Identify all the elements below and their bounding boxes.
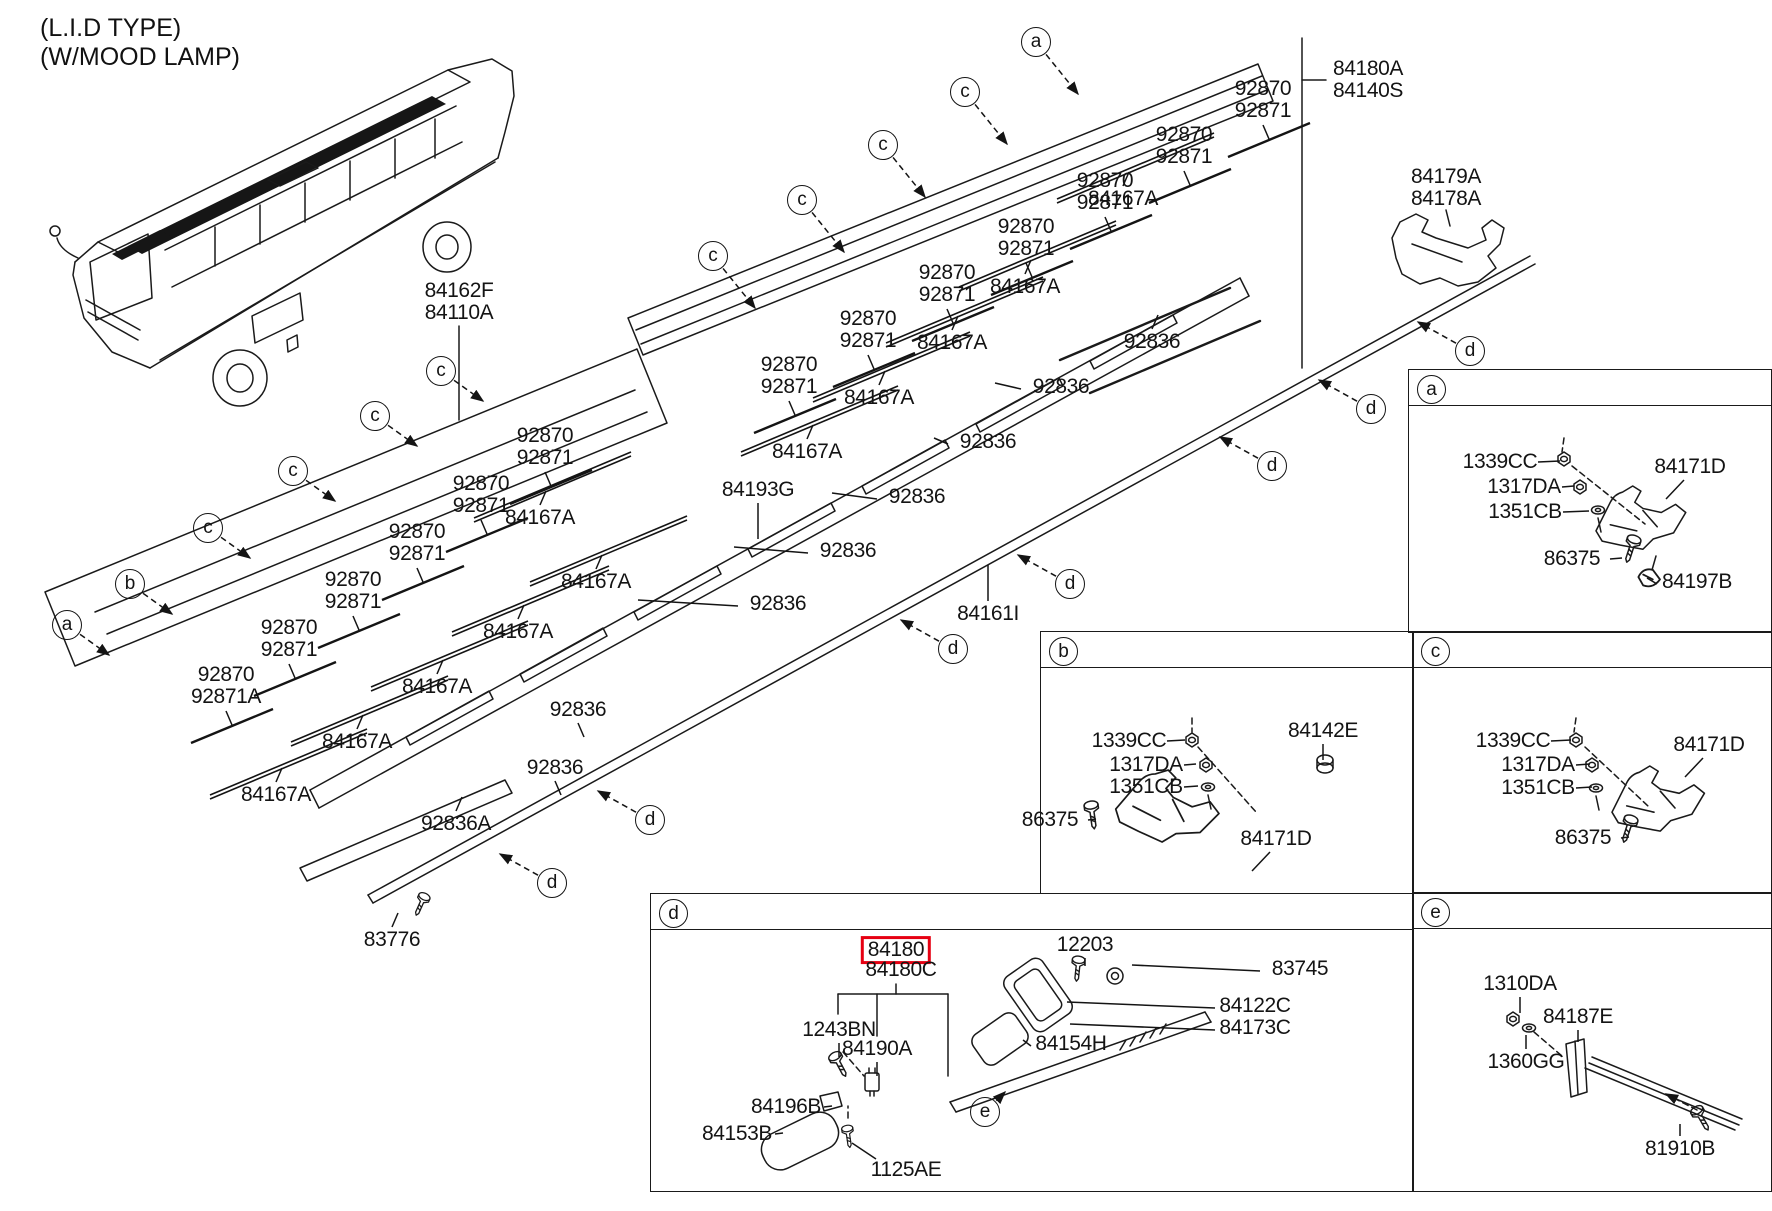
part-label-84167A[interactable]: 84167A	[990, 276, 1060, 298]
part-label-84162F-84110A[interactable]: 84162F 84110A	[425, 280, 494, 324]
part-label-92836[interactable]: 92836	[889, 486, 945, 508]
part-label-84179A-84178A[interactable]: 84179A 84178A	[1411, 166, 1481, 210]
part-label-84153B[interactable]: 84153B	[702, 1123, 772, 1145]
part-label-92870-92871[interactable]: 92870 92871	[998, 216, 1054, 260]
part-label-84154H[interactable]: 84154H	[1035, 1033, 1106, 1055]
parts-diagram: (L.I.D TYPE) (W/MOOD LAMP)	[0, 0, 1772, 1211]
part-label-92836[interactable]: 92836	[750, 593, 806, 615]
callout-a: a	[52, 610, 82, 640]
part-label-84167A[interactable]: 84167A	[1088, 188, 1158, 210]
part-label-84167A[interactable]: 84167A	[772, 441, 842, 463]
callout-a: a	[1021, 27, 1051, 57]
part-label-92836A[interactable]: 92836A	[421, 813, 491, 835]
part-label-86375[interactable]: 86375	[1555, 827, 1611, 849]
part-label-84173C[interactable]: 84173C	[1219, 1017, 1290, 1039]
callout-d: d	[1455, 336, 1485, 366]
diagram-leaders	[0, 0, 1772, 1211]
part-label-92836[interactable]: 92836	[1124, 331, 1180, 353]
part-label-1125AE[interactable]: 1125AE	[871, 1159, 942, 1181]
part-label-92836[interactable]: 92836	[820, 540, 876, 562]
part-label-84161I[interactable]: 84161I	[957, 603, 1019, 625]
part-label-84171D[interactable]: 84171D	[1654, 456, 1725, 478]
part-label-1351CB[interactable]: 1351CB	[1501, 777, 1575, 799]
part-label-92870-92871[interactable]: 92870 92871	[1235, 78, 1291, 122]
part-label-84167A[interactable]: 84167A	[844, 387, 914, 409]
part-label-84167A[interactable]: 84167A	[402, 676, 472, 698]
callout-b: b	[115, 569, 145, 599]
part-label-92836[interactable]: 92836	[1033, 376, 1089, 398]
part-label-92870-92871[interactable]: 92870 92871	[517, 425, 573, 469]
part-label-1351CB[interactable]: 1351CB	[1488, 501, 1562, 523]
part-label-92836[interactable]: 92836	[550, 699, 606, 721]
part-label-83776[interactable]: 83776	[364, 929, 420, 951]
part-label-84142E[interactable]: 84142E	[1288, 720, 1358, 742]
part-label-81910B[interactable]: 81910B	[1645, 1138, 1715, 1160]
part-label-84196B[interactable]: 84196B	[751, 1096, 821, 1118]
callout-c: c	[278, 456, 308, 486]
part-label-92870-92871[interactable]: 92870 92871	[919, 262, 975, 306]
part-label-1317DA[interactable]: 1317DA	[1501, 754, 1575, 776]
callout-d: d	[537, 868, 567, 898]
part-label-92870-92871[interactable]: 92870 92871	[840, 308, 896, 352]
part-label-92836[interactable]: 92836	[960, 431, 1016, 453]
part-label-12203[interactable]: 12203	[1057, 934, 1113, 956]
part-label-84193G[interactable]: 84193G	[722, 479, 794, 501]
part-label-84167A[interactable]: 84167A	[322, 731, 392, 753]
part-label-84167A[interactable]: 84167A	[241, 784, 311, 806]
part-label-92870-92871[interactable]: 92870 92871	[1156, 124, 1212, 168]
part-label-84167A[interactable]: 84167A	[505, 507, 575, 529]
callout-d: d	[1257, 451, 1287, 481]
diagram-title: (L.I.D TYPE) (W/MOOD LAMP)	[40, 14, 240, 72]
part-label-1351CB[interactable]: 1351CB	[1109, 776, 1183, 798]
part-label-84180A-84140S[interactable]: 84180A 84140S	[1333, 58, 1403, 102]
part-label-84122C[interactable]: 84122C	[1219, 995, 1290, 1017]
part-label-84190A[interactable]: 84190A	[842, 1038, 912, 1060]
part-label-92870-92871[interactable]: 92870 92871	[761, 354, 817, 398]
callout-e: e	[970, 1097, 1000, 1127]
part-label-84167A[interactable]: 84167A	[483, 621, 553, 643]
part-label-92870-92871A[interactable]: 92870 92871A	[191, 664, 261, 708]
part-label-83745[interactable]: 83745	[1272, 958, 1328, 980]
part-label-1317DA[interactable]: 1317DA	[1109, 754, 1183, 776]
callout-d: d	[635, 805, 665, 835]
callout-c: c	[698, 241, 728, 271]
part-label-92870-92871[interactable]: 92870 92871	[453, 473, 509, 517]
part-label-84171D[interactable]: 84171D	[1673, 734, 1744, 756]
part-label-1317DA[interactable]: 1317DA	[1487, 476, 1561, 498]
part-label-84187E[interactable]: 84187E	[1543, 1006, 1613, 1028]
part-label-84167A[interactable]: 84167A	[561, 571, 631, 593]
callout-d: d	[938, 634, 968, 664]
part-label-92870-92871[interactable]: 92870 92871	[389, 521, 445, 565]
part-label-92870-92871[interactable]: 92870 92871	[261, 617, 317, 661]
part-label-84171D[interactable]: 84171D	[1240, 828, 1311, 850]
part-label-84180C[interactable]: 84180C	[865, 959, 936, 981]
part-label-1339CC[interactable]: 1339CC	[1476, 730, 1551, 752]
callout-c: c	[787, 185, 817, 215]
callout-d: d	[1356, 394, 1386, 424]
callout-c: c	[426, 356, 456, 386]
part-label-92870-92871[interactable]: 92870 92871	[325, 569, 381, 613]
part-label-84167A[interactable]: 84167A	[917, 332, 987, 354]
callout-c: c	[950, 77, 980, 107]
part-label-1339CC[interactable]: 1339CC	[1463, 451, 1538, 473]
callout-c: c	[868, 130, 898, 160]
part-label-1360GG[interactable]: 1360GG	[1488, 1051, 1565, 1073]
part-label-86375[interactable]: 86375	[1544, 548, 1600, 570]
callout-c: c	[360, 401, 390, 431]
callout-d: d	[1055, 569, 1085, 599]
part-label-1339CC[interactable]: 1339CC	[1092, 730, 1167, 752]
part-label-84197B[interactable]: 84197B	[1662, 571, 1732, 593]
callout-c: c	[193, 513, 223, 543]
part-label-92836[interactable]: 92836	[527, 757, 583, 779]
part-label-1310DA[interactable]: 1310DA	[1483, 973, 1557, 995]
part-label-86375[interactable]: 86375	[1022, 809, 1078, 831]
